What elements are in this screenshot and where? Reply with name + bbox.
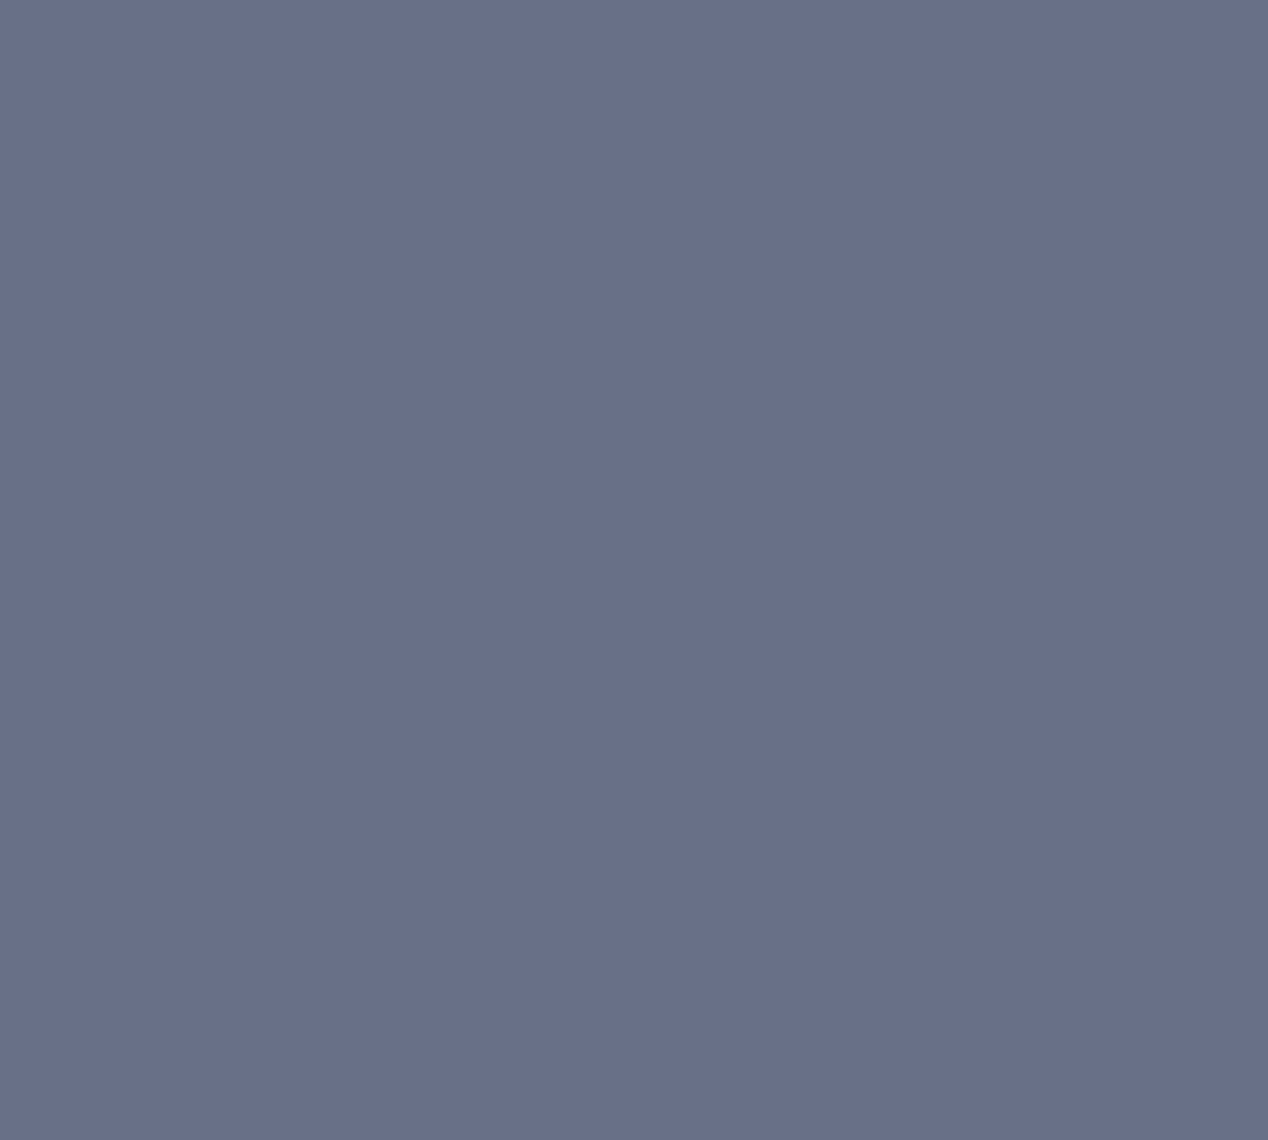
aerial-rendering-viewport (0, 0, 1268, 1140)
residential-masterplan-aerial-rendering (0, 0, 1268, 1140)
